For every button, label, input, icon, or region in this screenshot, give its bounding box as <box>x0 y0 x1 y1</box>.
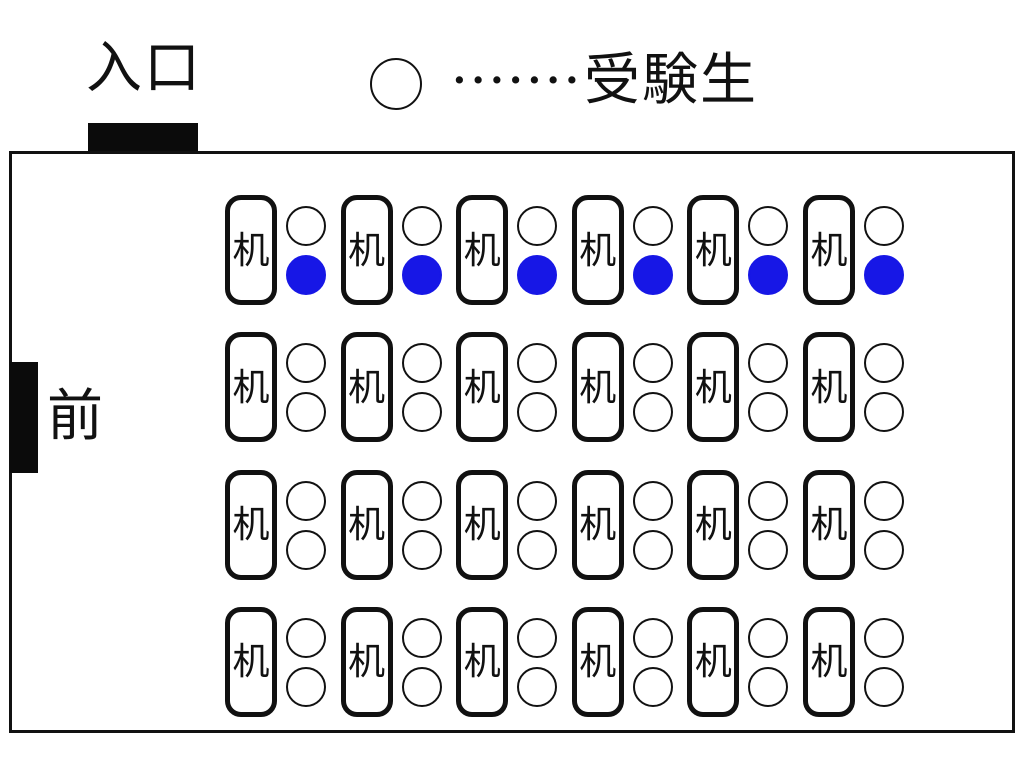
desk-r4-c3: 机 <box>456 607 508 717</box>
legend-dots: ••••••• <box>452 68 583 93</box>
desk-label: 机 <box>464 506 501 543</box>
desk-label: 机 <box>233 643 270 680</box>
desk-r3-c3: 机 <box>456 470 508 580</box>
seat-empty-r4-c1-bottom <box>286 667 326 707</box>
seat-empty-r4-c2-top <box>402 618 442 658</box>
room-outline <box>9 151 1015 733</box>
seat-empty-r3-c1-top <box>286 481 326 521</box>
desk-r1-c6: 机 <box>803 195 855 305</box>
entrance-door-rect <box>88 123 198 153</box>
seat-empty-r1-c4-top <box>633 206 673 246</box>
desk-label: 机 <box>233 232 270 269</box>
legend-examinee-circle-icon <box>370 58 422 110</box>
desk-label: 机 <box>464 232 501 269</box>
desk-label: 机 <box>464 369 501 406</box>
desk-r1-c5: 机 <box>687 195 739 305</box>
desk-r1-c4: 机 <box>572 195 624 305</box>
seat-empty-r1-c2-top <box>402 206 442 246</box>
seat-occupied-r1-c3-bottom <box>517 255 557 295</box>
desk-r2-c6: 机 <box>803 332 855 442</box>
desk-r4-c1: 机 <box>225 607 277 717</box>
seat-empty-r4-c4-bottom <box>633 667 673 707</box>
desk-r4-c4: 机 <box>572 607 624 717</box>
front-label: 前 <box>47 389 105 445</box>
seat-empty-r3-c5-bottom <box>748 530 788 570</box>
desk-label: 机 <box>579 643 616 680</box>
seat-empty-r3-c3-bottom <box>517 530 557 570</box>
seat-empty-r3-c5-top <box>748 481 788 521</box>
seat-occupied-r1-c1-bottom <box>286 255 326 295</box>
desk-label: 机 <box>348 369 385 406</box>
desk-r3-c4: 机 <box>572 470 624 580</box>
desk-r2-c1: 机 <box>225 332 277 442</box>
seat-empty-r1-c1-top <box>286 206 326 246</box>
desk-r2-c4: 机 <box>572 332 624 442</box>
desk-r4-c5: 机 <box>687 607 739 717</box>
desk-r1-c1: 机 <box>225 195 277 305</box>
desk-label: 机 <box>464 643 501 680</box>
seat-occupied-r1-c4-bottom <box>633 255 673 295</box>
seat-empty-r3-c1-bottom <box>286 530 326 570</box>
desk-label: 机 <box>695 369 732 406</box>
desk-label: 机 <box>579 506 616 543</box>
seat-empty-r3-c4-bottom <box>633 530 673 570</box>
desk-r2-c3: 机 <box>456 332 508 442</box>
seat-empty-r4-c6-top <box>864 618 904 658</box>
seat-empty-r4-c4-top <box>633 618 673 658</box>
desk-label: 机 <box>811 232 848 269</box>
desk-label: 机 <box>811 369 848 406</box>
seat-empty-r4-c6-bottom <box>864 667 904 707</box>
desk-label: 机 <box>695 643 732 680</box>
seat-empty-r4-c2-bottom <box>402 667 442 707</box>
desk-label: 机 <box>579 232 616 269</box>
desk-r3-c5: 机 <box>687 470 739 580</box>
exam-room-seating-diagram: 入口 ••••••• 受験生 前 机机机机机机机机机机机机机机机机机机机机机机机… <box>0 0 1024 768</box>
desk-r4-c6: 机 <box>803 607 855 717</box>
seat-empty-r2-c4-top <box>633 343 673 383</box>
desk-label: 机 <box>811 506 848 543</box>
seat-empty-r2-c2-bottom <box>402 392 442 432</box>
seat-empty-r4-c1-top <box>286 618 326 658</box>
seat-empty-r2-c2-top <box>402 343 442 383</box>
seat-empty-r1-c6-top <box>864 206 904 246</box>
entrance-label: 入口 <box>86 41 202 97</box>
seat-empty-r3-c2-bottom <box>402 530 442 570</box>
seat-empty-r4-c3-top <box>517 618 557 658</box>
desk-label: 机 <box>233 506 270 543</box>
desk-label: 机 <box>348 643 385 680</box>
front-board-rect <box>10 362 38 473</box>
desk-r3-c1: 机 <box>225 470 277 580</box>
desk-r3-c2: 机 <box>341 470 393 580</box>
desk-r3-c6: 机 <box>803 470 855 580</box>
desk-label: 机 <box>233 369 270 406</box>
desk-r1-c3: 机 <box>456 195 508 305</box>
seat-empty-r3-c6-bottom <box>864 530 904 570</box>
desk-label: 机 <box>695 232 732 269</box>
desk-label: 机 <box>348 506 385 543</box>
legend-label: 受験生 <box>584 53 758 109</box>
seat-empty-r3-c3-top <box>517 481 557 521</box>
desk-label: 机 <box>579 369 616 406</box>
desk-label: 机 <box>695 506 732 543</box>
seat-occupied-r1-c6-bottom <box>864 255 904 295</box>
seat-occupied-r1-c2-bottom <box>402 255 442 295</box>
seat-empty-r4-c3-bottom <box>517 667 557 707</box>
desk-label: 机 <box>348 232 385 269</box>
desk-label: 机 <box>811 643 848 680</box>
seat-empty-r2-c4-bottom <box>633 392 673 432</box>
desk-r1-c2: 机 <box>341 195 393 305</box>
seat-empty-r3-c6-top <box>864 481 904 521</box>
seat-empty-r3-c4-top <box>633 481 673 521</box>
desk-r4-c2: 机 <box>341 607 393 717</box>
seat-empty-r1-c3-top <box>517 206 557 246</box>
desk-r2-c5: 机 <box>687 332 739 442</box>
seat-empty-r3-c2-top <box>402 481 442 521</box>
desk-r2-c2: 机 <box>341 332 393 442</box>
